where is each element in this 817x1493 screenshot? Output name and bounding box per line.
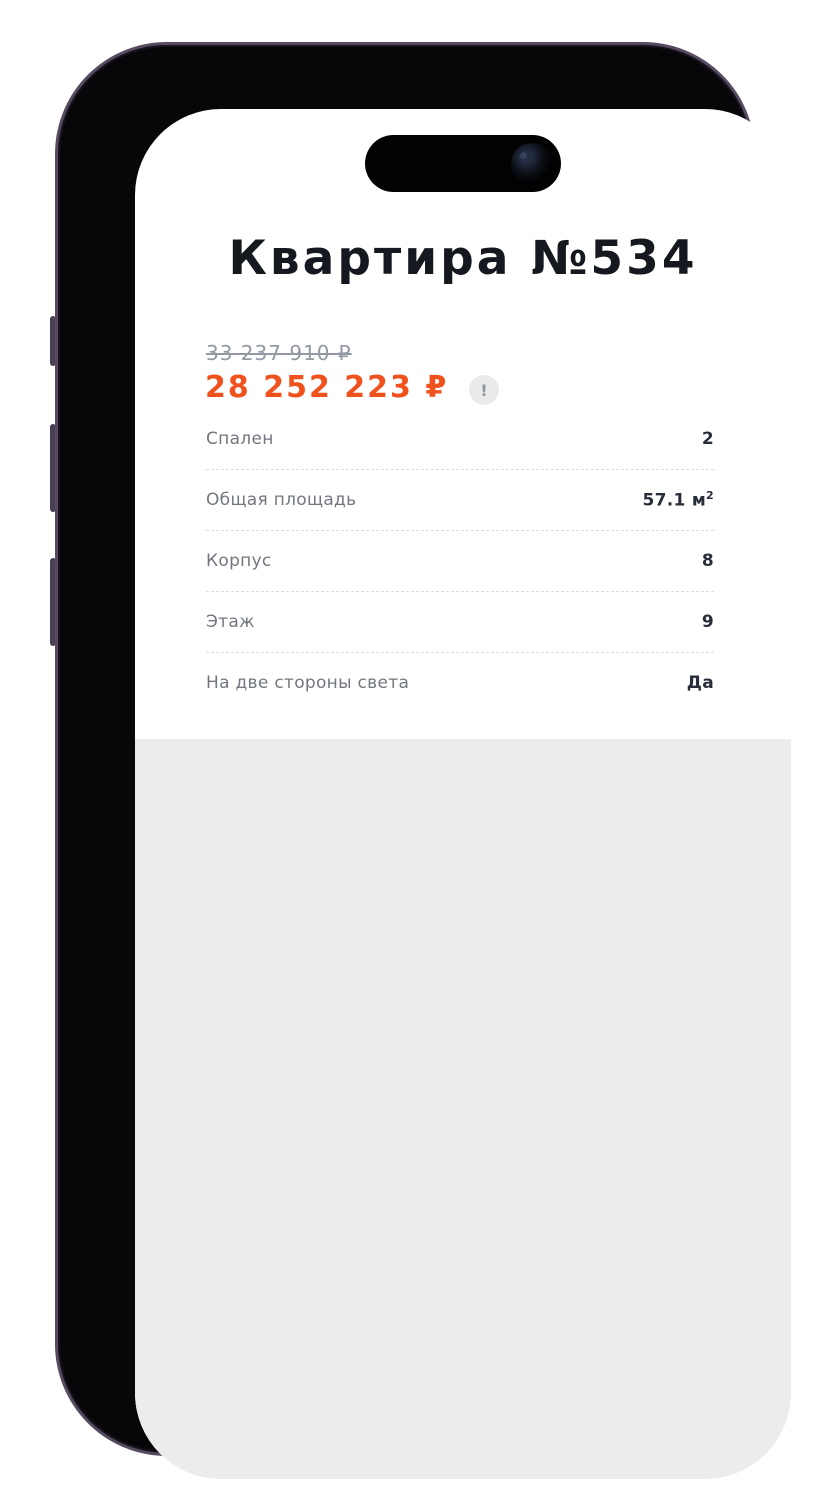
table-row: Этаж 9 [206,592,714,653]
row-value: 8 [702,551,714,571]
screen: Квартира №534 33 237 910 ₽ 28 252 223 ₽ … [135,109,791,1479]
row-label: Спален [206,429,274,449]
row-value: 57.1 м2 [642,489,714,511]
page-title: Квартира №534 [135,231,791,286]
table-row: Спален 2 [206,409,714,470]
row-label: Общая площадь [206,490,356,510]
old-price: 33 237 910 ₽ [206,341,352,365]
row-value: 9 [702,612,714,632]
row-label: На две стороны света [206,673,409,693]
table-row: Общая площадь 57.1 м2 [206,470,714,531]
row-value: 2 [702,429,714,449]
table-row: Корпус 8 [206,531,714,592]
camera-icon [511,143,552,184]
page: Квартира №534 33 237 910 ₽ 28 252 223 ₽ … [0,0,817,1493]
row-label: Корпус [206,551,272,571]
plan-section: 12,4 10,1 13,6 9,4 3,7 3,5 4,4 [135,739,791,1479]
phone-frame: Квартира №534 33 237 910 ₽ 28 252 223 ₽ … [55,42,755,1456]
row-value: Да [687,673,714,693]
dynamic-island [365,135,561,192]
info-icon[interactable]: ! [469,375,499,405]
details-table: Спален 2 Общая площадь 57.1 м2 Корпус 8 … [206,409,714,713]
table-row: На две стороны света Да [206,653,714,713]
current-price: 28 252 223 ₽ [205,370,448,405]
row-label: Этаж [206,612,255,632]
